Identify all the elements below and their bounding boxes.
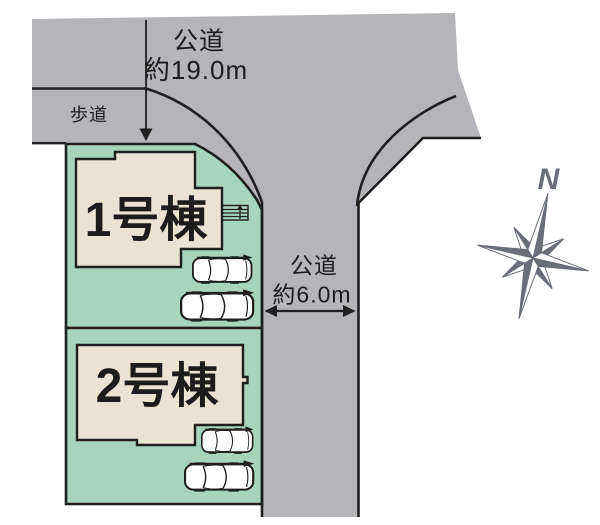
compass-rose-icon [464, 181, 600, 331]
road-right-width-label: 約6.0m [272, 284, 351, 307]
building-1-label: 1号棟 [85, 197, 208, 245]
car-icon [181, 289, 254, 321]
site-plan: 公道 約19.0m 歩道 公道 約6.0m 1号棟 2号棟 N [0, 0, 600, 525]
road-top-name-label: 公道 [173, 30, 225, 55]
building-2-label: 2号棟 [96, 363, 219, 411]
compass-north-label: N [538, 165, 561, 195]
car-icon [202, 426, 254, 453]
sidewalk-label: 歩道 [70, 106, 108, 124]
car-icon [193, 254, 252, 283]
road-right-name-label: 公道 [290, 255, 338, 278]
car-icon [185, 460, 254, 491]
road-top-width-label: 約19.0m [144, 57, 248, 83]
